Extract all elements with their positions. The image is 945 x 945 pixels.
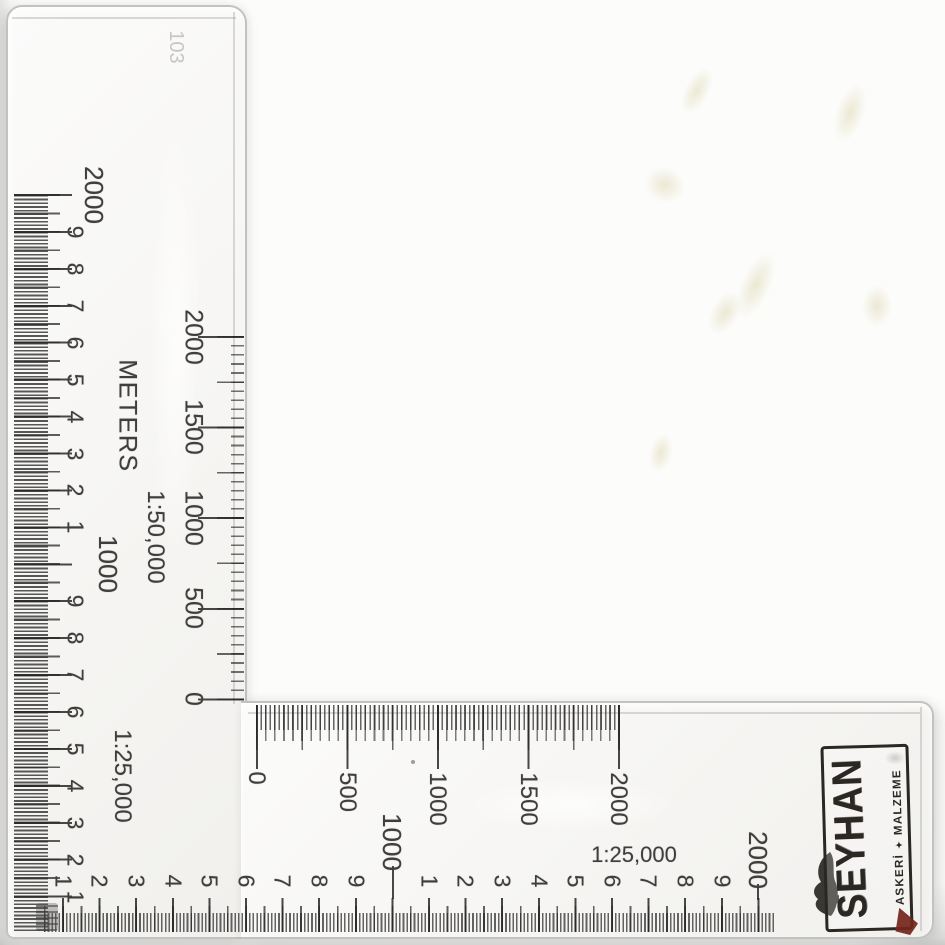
inner-scale-numeral: 500 [181,588,206,630]
left-scale-numeral: 4 [64,410,87,423]
bottom-scale-numeral: 1000 [379,813,405,871]
top-scale-numeral: 500 [335,772,359,812]
ratio-1-25000-left-label: 1:25,000 [110,729,134,822]
bottom-scale-numeral: 7 [271,875,294,888]
logo-frame: SEYHAN ASKERİ ✦ MALZEME [820,744,913,932]
seyhan-logo: SEYHAN ASKERİ ✦ MALZEME [823,745,911,931]
logo-brand-text: SEYHAN [823,748,878,930]
left-scale-numeral: 8 [64,632,87,645]
photo-canvas: 103 METERS 1:50,000 1:25,000 1:25,000 20… [0,0,945,945]
bottom-scale-numeral: 5 [198,875,221,888]
edge-bevel-line [12,17,236,19]
top-horizontal-scale-ticks [256,705,621,769]
left-scale-numeral: 9 [64,595,87,608]
inner-scale-numeral: 0 [181,692,206,706]
bottom-scale-numeral: 4 [527,875,550,888]
bottom-scale-numeral: 7 [637,875,660,888]
logo-subtitle-left: ASKERİ [893,854,906,906]
left-scale-numeral: 9 [64,226,87,239]
logo-subtitle: ASKERİ ✦ MALZEME [890,747,907,927]
corner-smudge [36,903,58,931]
left-scale-numeral: 8 [64,262,87,275]
ratio-1-25000-bottom-label: 1:25,000 [591,844,677,866]
bottom-scale-numeral: 9 [344,875,367,888]
left-scale-numeral: 7 [64,299,87,312]
inner-scale-numeral: 2000 [181,309,206,365]
bottom-scale-numeral: 4 [161,875,184,888]
top-scale-numeral: 1500 [516,772,540,825]
top-scale-numeral: 2000 [606,772,630,825]
bottom-scale-ticks [44,898,776,932]
left-scale-numeral: 2 [64,484,87,497]
meters-unit-label: METERS [115,359,140,472]
bottom-scale-numeral: 6 [234,875,257,888]
bottom-scale-numeral: 3 [124,875,147,888]
bottom-scale-numeral: 1 [51,875,74,888]
left-scale-numeral: 5 [64,743,87,756]
bottom-scale-numeral: 3 [490,875,513,888]
edge-bevel-line [920,707,922,931]
inner-scale-numeral: 1000 [181,490,206,546]
bottom-scale-numeral: 6 [600,875,623,888]
top-scale-numeral: 1000 [425,772,449,825]
background-smudge [629,152,701,219]
left-scale-numeral: 3 [64,447,87,460]
dust-speck [411,760,415,764]
left-scale-numeral: 2000 [81,166,107,224]
ratio-1-50000-label: 1:50,000 [143,490,167,583]
bottom-scale-numeral: 2000 [745,831,771,889]
background-smudge [638,422,683,484]
left-scale-numeral: 3 [64,816,87,829]
bottom-scale-numeral: 2 [454,875,477,888]
bottom-scale-numeral: 2 [88,875,111,888]
left-scale-numeral: 2 [64,853,87,866]
left-scale-numeral: 1000 [95,535,121,593]
bottom-scale-numeral: 5 [564,875,587,888]
background-smudge [818,66,883,160]
logo-subtitle-right: MALZEME [891,769,905,835]
faint-stamp-text: 103 [166,30,186,63]
left-scale-numeral: 6 [64,336,87,349]
left-scale-numeral: 5 [64,373,87,386]
background-smudge [665,51,729,131]
bottom-scale-numeral: 8 [307,875,330,888]
background-smudge [716,231,795,339]
bottom-scale-numeral: 8 [673,875,696,888]
background-smudge [856,276,898,336]
reflection-highlight [430,770,710,840]
bottom-scale-numeral: 1 [417,875,440,888]
top-scale-numeral: 0 [244,771,268,784]
left-scale-numeral: 1 [64,521,87,534]
left-scale-numeral: 6 [64,706,87,719]
left-scale-numeral: 1 [64,890,87,903]
star-icon: ✦ [894,840,905,849]
background-smudge [691,274,759,351]
left-scale-numeral: 4 [64,779,87,792]
inner-scale-numeral: 1500 [181,399,206,455]
bottom-scale-numeral: 9 [710,875,733,888]
left-scale-numeral: 7 [64,669,87,682]
